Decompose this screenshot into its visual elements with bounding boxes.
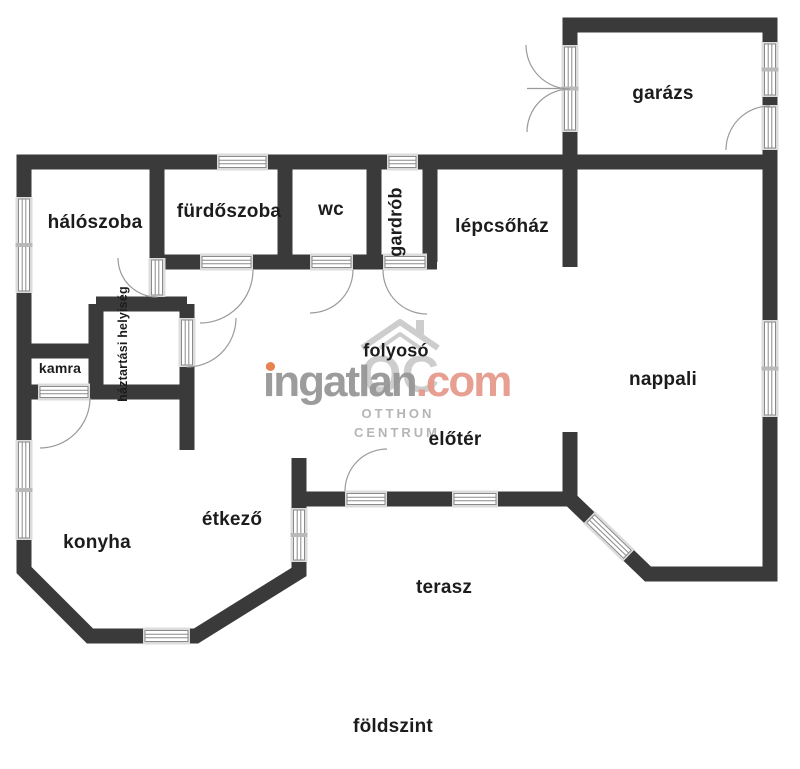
floor-plan <box>0 0 800 769</box>
garage-wall <box>570 25 770 162</box>
door-swing-arc <box>310 270 353 313</box>
window-living-diagonal <box>583 511 634 561</box>
door-utility <box>179 318 196 367</box>
window-living-right <box>762 320 779 417</box>
door-garage-side <box>762 105 779 150</box>
window-foyer-bottom <box>452 491 498 508</box>
door-closet <box>383 254 427 271</box>
window-closet-top <box>387 154 418 171</box>
door-wc <box>310 254 353 271</box>
door-bathroom <box>200 254 253 271</box>
window-kitchen-left <box>16 440 33 540</box>
walls-layer <box>24 25 770 636</box>
window-garage-right <box>762 42 779 97</box>
floor-plan-page: OC ingatlan.com OTTHON CENTRUM hálószoba… <box>0 0 800 769</box>
window-bedroom-left <box>16 197 33 293</box>
door-swing-arc <box>40 398 90 448</box>
door-bedroom <box>149 258 166 297</box>
door-swing-arc <box>200 270 253 323</box>
door-swing-arc <box>345 449 387 491</box>
openings-layer <box>16 42 779 645</box>
window-bathroom-top <box>217 154 268 171</box>
door-swing-arc <box>383 270 427 314</box>
door-front <box>345 491 387 508</box>
door-pantry <box>38 384 90 401</box>
window-dining-right <box>291 508 308 562</box>
window-bay-bottom <box>143 628 190 645</box>
